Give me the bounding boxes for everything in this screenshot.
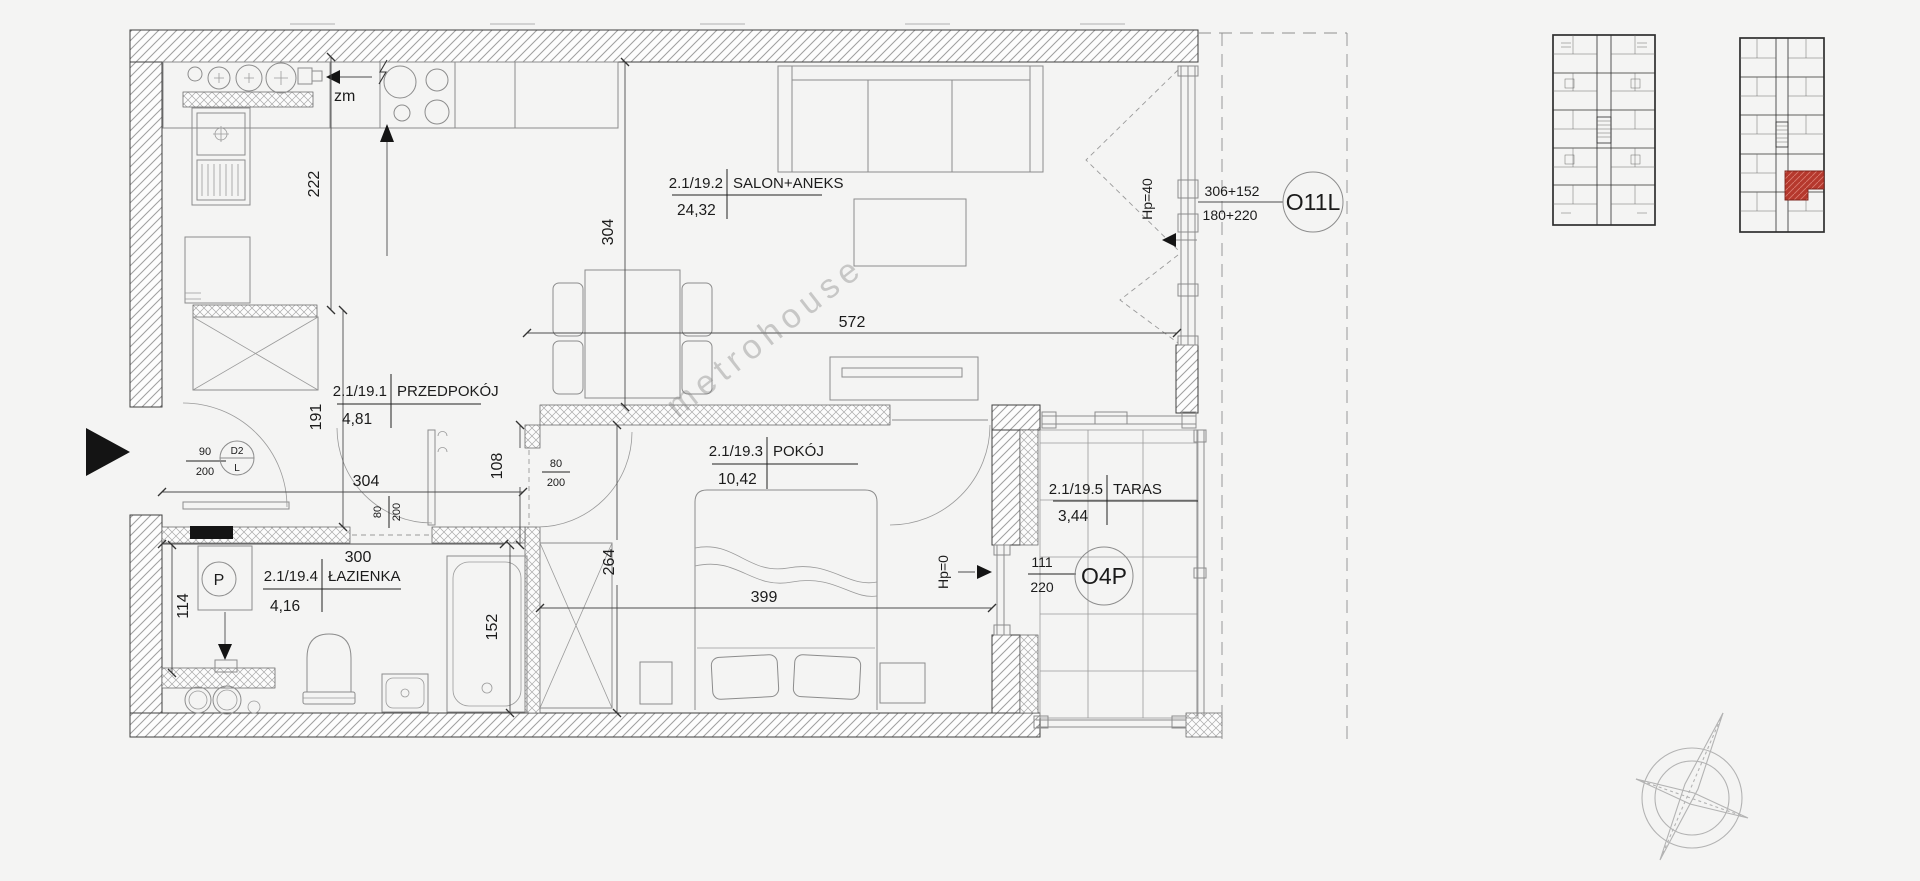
- salon-area: 24,32: [677, 202, 716, 219]
- salon-terrace-window: [1042, 412, 1196, 428]
- highlighted-unit: [1785, 171, 1824, 200]
- floorplan-canvas: zm: [0, 0, 1920, 881]
- terrace-door-code: O4P: [1081, 563, 1127, 589]
- exterior-walls: [130, 24, 1198, 737]
- entrance-arrow-icon: [86, 428, 130, 476]
- washbasin-icon: [382, 674, 428, 712]
- nightstand-left: [640, 662, 672, 704]
- label-salon: 2.1/19.2 SALON+ANEKS 24,32: [669, 169, 844, 219]
- window-arrow-icon: [1162, 233, 1176, 247]
- bath-name: ŁAZIENKA: [328, 568, 401, 585]
- terrace-door-width: 111: [1031, 554, 1052, 570]
- terrace-door-arrow-icon: [977, 565, 992, 579]
- terrace-door-height: 220: [1030, 579, 1054, 595]
- sink-icon: [188, 63, 322, 93]
- sofa: [778, 66, 1043, 172]
- floorplan-page: zm: [0, 0, 1920, 881]
- terrace-door-O4P: [994, 545, 1010, 635]
- terrace-door-parapet: Hp=0: [935, 555, 951, 589]
- room-code: 2.1/19.3: [709, 443, 763, 460]
- salon-room-door-swing: [890, 425, 990, 525]
- dim-washer-bay: 114: [175, 593, 192, 619]
- bath-door-swing: [337, 428, 432, 523]
- dimensions: 222 304 572 191 304 300 108 264 399 152 …: [162, 57, 1177, 713]
- label-pokoj: 2.1/19.3 POKÓJ 10,42: [709, 437, 858, 489]
- salon-window-code: O11L: [1286, 189, 1341, 215]
- hall-area: 4,81: [342, 411, 372, 428]
- entry-height: 200: [196, 466, 214, 478]
- salon-window-parapet: Hp=40: [1139, 178, 1155, 220]
- salon-window-lower: 180+220: [1203, 207, 1258, 223]
- tv-bench: [830, 357, 978, 400]
- entry-width: 90: [199, 446, 211, 458]
- bath-door-height: 200: [391, 503, 403, 521]
- compass-icon: [1636, 713, 1748, 860]
- entry-code: D2: [231, 446, 244, 457]
- tall-oven-column: [192, 108, 250, 205]
- hall-name: PRZEDPOKÓJ: [397, 383, 499, 400]
- bath-door-width: 80: [372, 506, 384, 518]
- room-door-width: 80: [550, 458, 562, 470]
- casement-indicator-upper: [1086, 70, 1178, 250]
- boundary-dashed-lines: [1198, 33, 1347, 745]
- label-przedpokoj: 2.1/19.1 PRZEDPOKÓJ 4,81: [333, 374, 499, 428]
- corner-sink-unit: [162, 660, 275, 714]
- bedroom-furniture: [540, 490, 925, 710]
- living-furniture: [553, 66, 1043, 400]
- dim-salon-width: 572: [839, 314, 866, 331]
- label-lazienka: 2.1/19.4 ŁAZIENKA 4,16: [263, 559, 401, 615]
- entry-door-leaf: [183, 502, 289, 509]
- entry-swing: L: [234, 463, 240, 474]
- nightstand-right: [880, 663, 925, 703]
- interior-walls: [162, 405, 1222, 737]
- washer-label: P: [214, 572, 225, 589]
- room-area: 10,42: [718, 471, 757, 488]
- dim-kitchen-run: 222: [306, 171, 323, 198]
- dim-tub: 152: [484, 614, 501, 641]
- dim-room-width: 399: [751, 589, 778, 606]
- dim-bath-width: 300: [345, 549, 372, 566]
- terrace-code: 2.1/19.5: [1049, 481, 1103, 498]
- key-plan-right: [1740, 38, 1824, 232]
- dim-niche: 108: [489, 453, 506, 480]
- dim-hall-depth: 191: [308, 404, 325, 431]
- room-name: POKÓJ: [773, 443, 824, 460]
- kitchen-furniture: zm: [163, 60, 618, 390]
- dim-salon-depth: 304: [600, 219, 617, 246]
- casement-indicator-lower: [1120, 255, 1178, 343]
- bath-door-leaf: [428, 430, 435, 525]
- hob-icon: [379, 60, 449, 124]
- dim-room-depth: 264: [601, 549, 618, 576]
- coat-hooks-icon: [438, 432, 447, 453]
- toilet-icon: [303, 634, 355, 704]
- room-labels: 2.1/19.2 SALON+ANEKS 24,32 2.1/19.1 PRZE…: [263, 169, 1198, 615]
- salon-code: 2.1/19.2: [669, 175, 723, 192]
- bed: [695, 490, 877, 710]
- radiator: [190, 526, 233, 539]
- key-plan-left: [1553, 35, 1655, 225]
- terrace-name: TARAS: [1113, 481, 1162, 498]
- dim-hall-width: 304: [353, 473, 380, 490]
- washing-machine: P: [198, 546, 252, 660]
- bath-code: 2.1/19.4: [264, 568, 318, 585]
- entry-closet: [193, 317, 318, 390]
- terrace-area: 3,44: [1058, 508, 1089, 525]
- dishwasher-mark: zm: [326, 70, 394, 256]
- salon-window-upper: 306+152: [1205, 183, 1260, 199]
- rug: [854, 199, 966, 266]
- dishwasher-label: zm: [334, 88, 355, 105]
- hall-code: 2.1/19.1: [333, 383, 387, 400]
- bath-area: 4,16: [270, 598, 300, 615]
- salon-name: SALON+ANEKS: [733, 175, 843, 192]
- room-door-height: 200: [547, 477, 565, 489]
- counter-edge: [183, 92, 313, 107]
